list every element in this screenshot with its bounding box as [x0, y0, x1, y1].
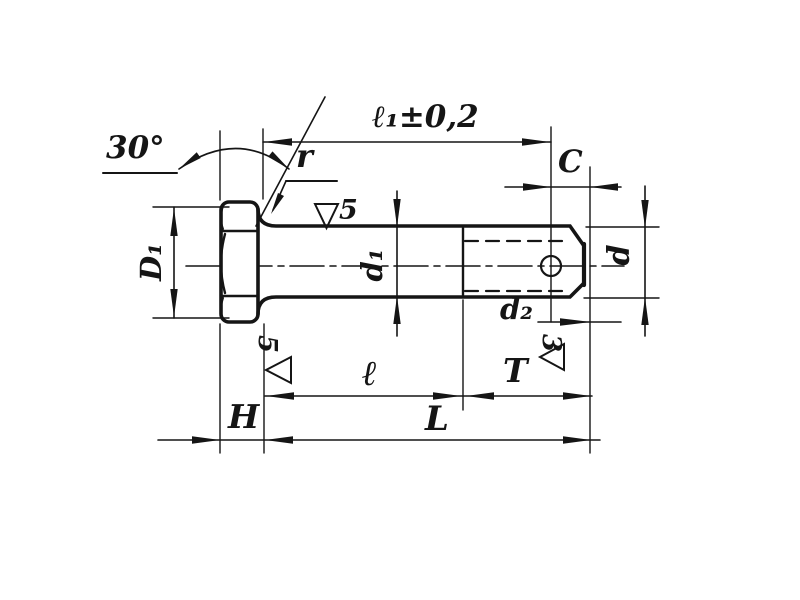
surface-finish-end: 3: [538, 332, 564, 354]
fillet-radius-label: r: [296, 140, 313, 172]
chamfer-dimension-label: C: [558, 147, 583, 178]
end-diameter-label: d: [605, 235, 639, 275]
head-height-label: H: [228, 400, 259, 433]
triangle-icon: [266, 357, 291, 383]
bolt-shank-outline: [258, 209, 584, 314]
surface-finish-shank: 5: [339, 197, 358, 224]
hole-diameter-label: d₂: [500, 295, 533, 324]
drawing-linework: [0, 0, 800, 600]
thread-length-label: T: [503, 354, 528, 387]
overall-length-label: L: [425, 402, 449, 436]
bolt-head: [221, 202, 258, 322]
surface-finish-head-face: 5: [254, 333, 280, 355]
thread-lines: [463, 228, 570, 295]
grip-length-label: ℓ: [362, 356, 377, 391]
head-diameter-label: D₁: [137, 234, 171, 290]
pin-hole-distance-label: ℓ₁±0,2: [372, 102, 479, 133]
shank-diameter-label: d₁: [358, 240, 392, 290]
angle-dimension-label: 30°: [106, 133, 165, 164]
engineering-drawing-canvas: 30° r ℓ₁±0,2 C D₁ d₁ d d₂ H ℓ T L 5 5 3: [0, 0, 800, 600]
chamfer-angle-line: [256, 97, 325, 226]
